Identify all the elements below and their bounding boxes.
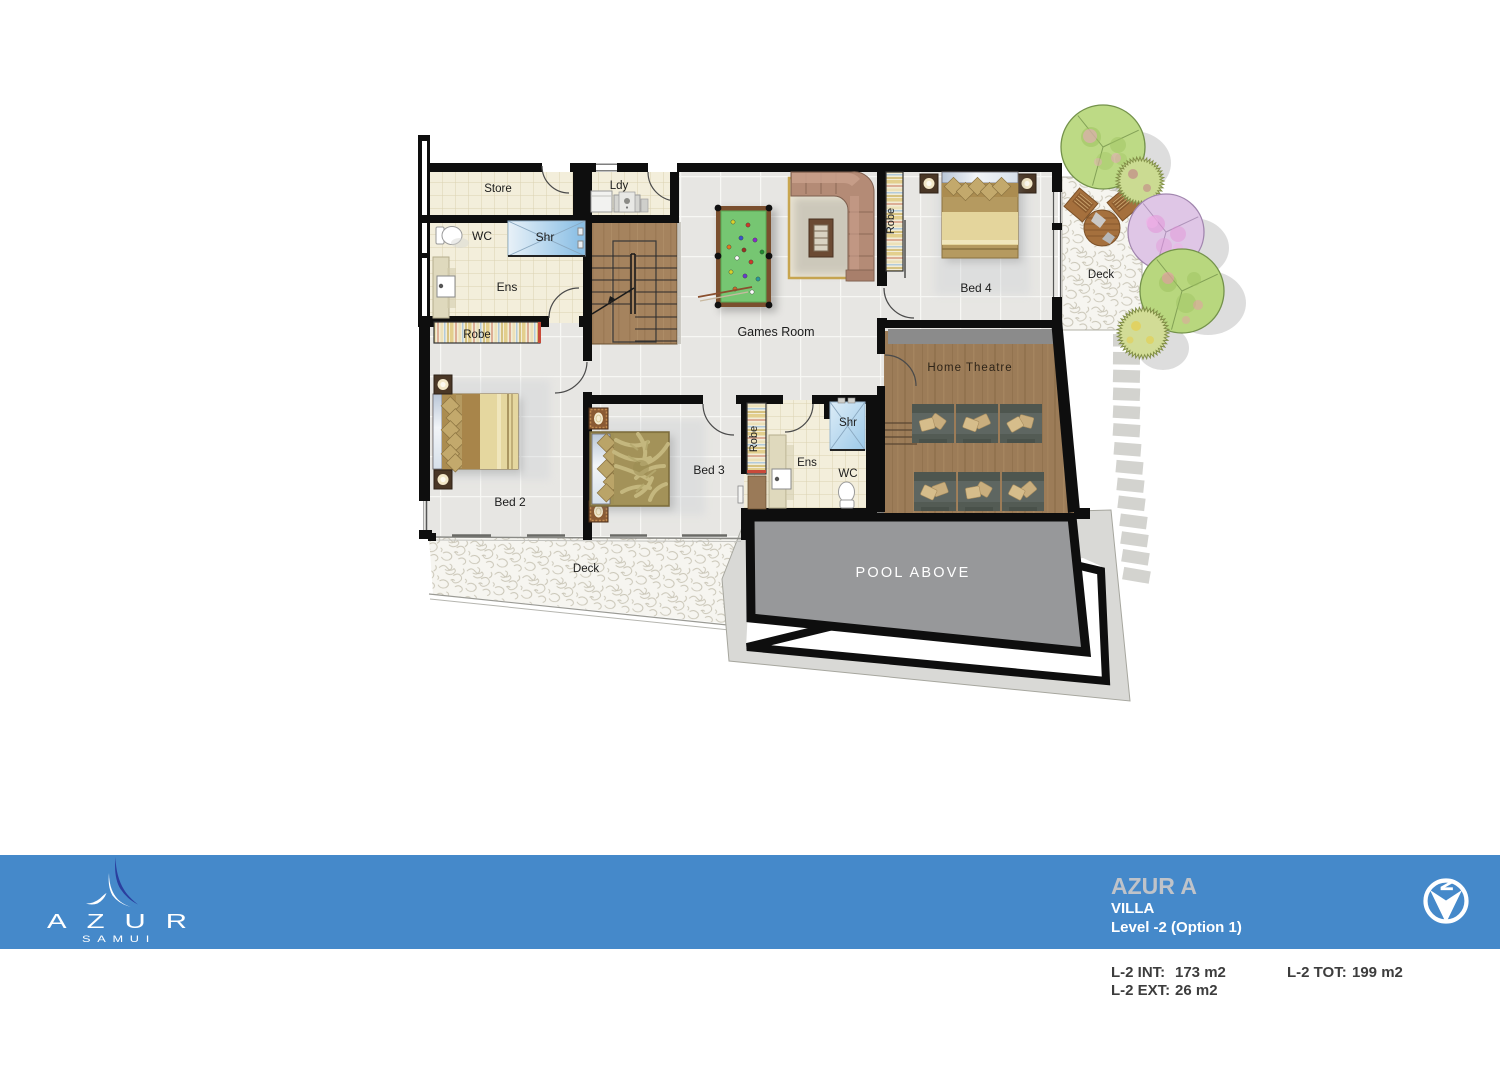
svg-text:AZUR A: AZUR A	[1111, 873, 1197, 899]
svg-text:Shr: Shr	[839, 417, 857, 429]
svg-text:Deck: Deck	[573, 563, 599, 575]
svg-text:Robe: Robe	[463, 329, 491, 341]
svg-text:L-2 TOT:: L-2 TOT:	[1287, 964, 1347, 981]
svg-text:AZUR: AZUR	[47, 910, 207, 933]
svg-text:26 m2: 26 m2	[1175, 982, 1218, 999]
svg-text:Deck: Deck	[1088, 269, 1114, 281]
svg-text:Bed 2: Bed 2	[494, 495, 526, 509]
svg-text:173 m2: 173 m2	[1175, 964, 1226, 981]
svg-text:Games Room: Games Room	[737, 325, 814, 339]
svg-text:WC: WC	[838, 468, 857, 480]
svg-text:SAMUI: SAMUI	[82, 934, 156, 945]
svg-text:N: N	[1437, 879, 1455, 891]
svg-text:Robe: Robe	[748, 426, 760, 452]
svg-text:Robe: Robe	[885, 208, 897, 234]
svg-text:L-2 EXT:: L-2 EXT:	[1111, 982, 1170, 999]
svg-text:VILLA: VILLA	[1111, 900, 1154, 917]
svg-text:Ldy: Ldy	[610, 180, 629, 192]
svg-text:Store: Store	[484, 183, 512, 195]
svg-text:Bed 3: Bed 3	[693, 463, 725, 477]
svg-text:199 m2: 199 m2	[1352, 964, 1403, 981]
svg-text:L-2 INT:: L-2 INT:	[1111, 964, 1165, 981]
svg-text:WC: WC	[472, 229, 492, 243]
svg-text:POOL ABOVE: POOL ABOVE	[856, 565, 971, 581]
svg-text:Home Theatre: Home Theatre	[927, 362, 1012, 374]
svg-text:Ens: Ens	[797, 457, 817, 469]
svg-text:Shr: Shr	[536, 230, 555, 244]
svg-text:Bed 4: Bed 4	[960, 281, 992, 295]
svg-text:Ens: Ens	[497, 280, 518, 294]
svg-text:Level -2 (Option 1): Level -2 (Option 1)	[1111, 919, 1242, 936]
